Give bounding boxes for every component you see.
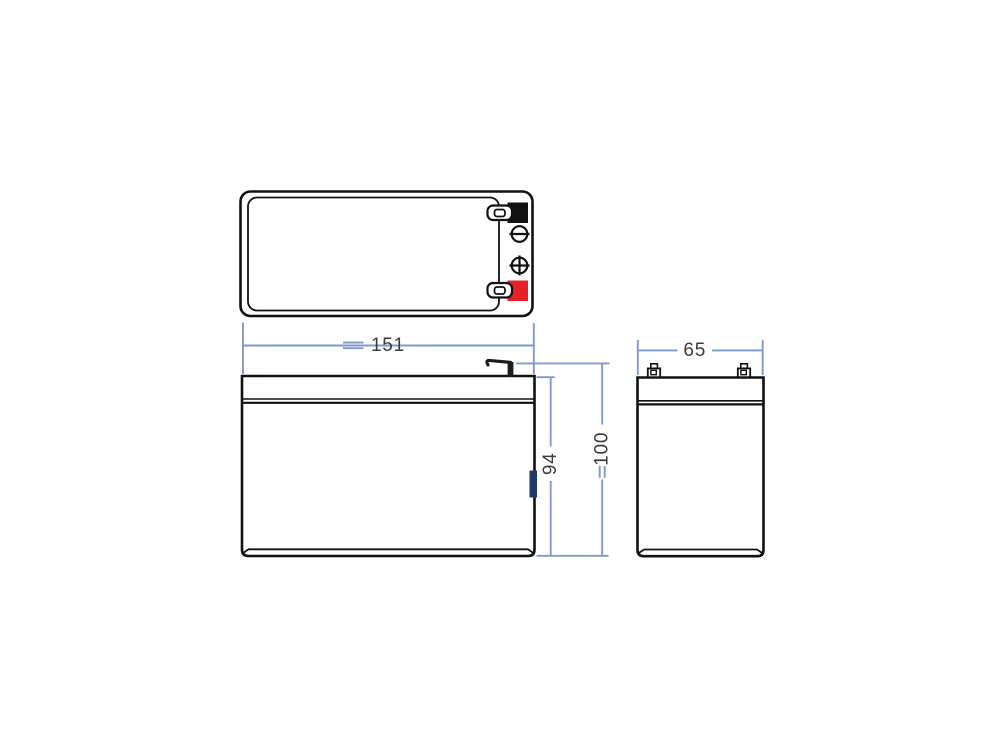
negative-terminal-tab-hole <box>495 210 506 217</box>
dim-total-height-label: 100 <box>592 432 613 466</box>
dim-case-height-label: 94 <box>540 452 561 475</box>
drawing-canvas: 151 94 100 65 <box>0 0 1000 756</box>
top-view-inner-edge <box>248 198 499 311</box>
dim-length-label: 151 <box>371 335 405 356</box>
side-terminal-right <box>738 364 750 377</box>
dim-width-label: 65 <box>683 340 706 361</box>
dim-length: 151 <box>243 323 534 375</box>
side-clip <box>530 471 538 498</box>
front-terminal-hook <box>487 360 513 377</box>
top-view <box>241 192 533 317</box>
side-terminal-left <box>648 364 660 377</box>
front-view <box>242 360 537 556</box>
dim-case-height: 94 <box>537 377 562 556</box>
battery-dimension-drawing: 151 94 100 65 <box>0 0 1000 756</box>
dim-total-height-break-mark <box>600 466 605 478</box>
side-view <box>638 364 764 556</box>
positive-terminal-tab-hole <box>495 287 506 294</box>
